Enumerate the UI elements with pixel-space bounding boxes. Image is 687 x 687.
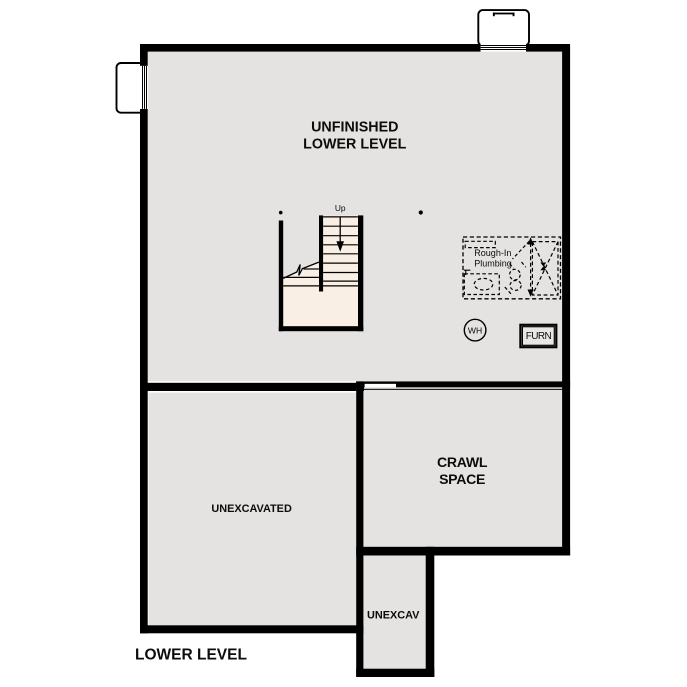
svg-text:UNEXCAV: UNEXCAV [367,609,420,621]
svg-text:SPACE: SPACE [439,471,485,487]
svg-text:UNFINISHED: UNFINISHED [311,120,398,136]
svg-text:UNEXCAVATED: UNEXCAVATED [211,503,292,515]
svg-text:Rough-In: Rough-In [474,248,511,258]
svg-text:Plumbing: Plumbing [474,259,512,269]
svg-text:LOWER LEVEL: LOWER LEVEL [135,646,247,663]
svg-text:FURN: FURN [526,331,552,342]
svg-text:LOWER LEVEL: LOWER LEVEL [303,137,407,153]
svg-text:Up: Up [335,203,346,213]
svg-text:CRAWL: CRAWL [437,454,488,470]
svg-text:WH: WH [468,325,482,335]
